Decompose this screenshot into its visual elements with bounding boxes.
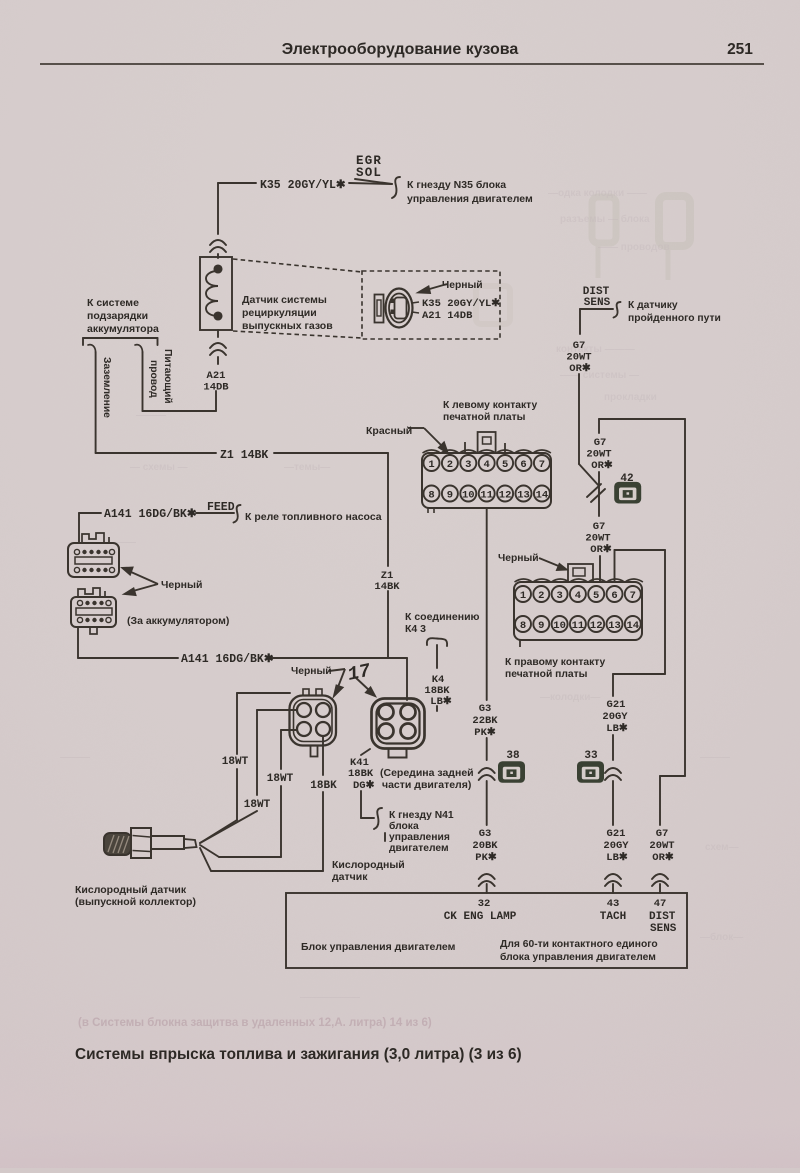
svg-text:прокладки: прокладки — [604, 392, 657, 403]
svg-text:12: 12 — [590, 620, 603, 632]
svg-text:5: 5 — [593, 590, 599, 602]
svg-text:20WT: 20WT — [566, 352, 591, 364]
svg-text:Системы впрыска топлива и зажи: Системы впрыска топлива и зажигания (3,0… — [75, 1046, 522, 1063]
svg-text:—колодки—: —колодки— — [540, 692, 600, 703]
svg-text:двигателем: двигателем — [389, 843, 449, 854]
svg-text:5: 5 — [502, 459, 508, 471]
svg-text:20WT: 20WT — [586, 449, 611, 461]
svg-text:2: 2 — [447, 459, 453, 471]
svg-text:Для 60-ти контактного единого: Для 60-ти контактного единого — [500, 939, 658, 950]
svg-text:—темы—: —темы— — [284, 462, 330, 473]
svg-text:LB✱: LB✱ — [606, 851, 628, 864]
svg-text:G7: G7 — [573, 340, 586, 352]
svg-text:3: 3 — [556, 590, 562, 602]
svg-text:1: 1 — [428, 459, 434, 471]
svg-text:6: 6 — [611, 590, 617, 602]
svg-text:———: ——— — [60, 752, 90, 763]
svg-text:Датчик системы: Датчик системы — [242, 294, 327, 306]
svg-text:251: 251 — [727, 41, 753, 58]
svg-text:G7: G7 — [594, 437, 607, 449]
svg-text:Кислородный датчик: Кислородный датчик — [75, 884, 187, 896]
svg-text:8: 8 — [520, 620, 526, 632]
svg-text:LB✱: LB✱ — [606, 722, 628, 735]
svg-text:18WT: 18WT — [267, 773, 294, 785]
svg-text:CK ENG LAMP: CK ENG LAMP — [444, 911, 517, 923]
svg-text:Электрооборудование кузова: Электрооборудование кузова — [282, 41, 519, 58]
svg-text:A141 16DG/BK✱: A141 16DG/BK✱ — [104, 508, 197, 521]
svg-text:Черный: Черный — [161, 579, 202, 591]
svg-text:20GY: 20GY — [602, 711, 628, 723]
svg-text:OR✱: OR✱ — [590, 543, 612, 556]
svg-text:провод: провод — [148, 360, 159, 398]
svg-text:К соединению: К соединению — [405, 611, 480, 623]
svg-text:OR✱: OR✱ — [591, 459, 613, 472]
svg-text:подзарядки: подзарядки — [87, 310, 148, 322]
svg-text:14DB: 14DB — [203, 382, 229, 394]
svg-text:части двигателя): части двигателя) — [382, 779, 471, 791]
svg-text:G7: G7 — [656, 828, 669, 840]
svg-text:(За аккумулятором): (За аккумулятором) — [127, 615, 229, 627]
svg-text:18WT: 18WT — [244, 799, 271, 811]
svg-text:42: 42 — [620, 473, 633, 485]
svg-text:(выпускной коллектор): (выпускной коллектор) — [75, 896, 196, 908]
svg-text:управления двигателем: управления двигателем — [407, 193, 533, 205]
svg-text:18BK: 18BK — [310, 780, 337, 792]
svg-text:— схемы —: — схемы — — [130, 462, 188, 473]
svg-text:4: 4 — [575, 590, 581, 602]
svg-text:управления: управления — [389, 832, 450, 843]
svg-text:DIST: DIST — [649, 911, 676, 923]
svg-text:——————: —————— — [300, 992, 360, 1003]
svg-text:К реле топливного насоса: К реле топливного насоса — [245, 511, 382, 523]
svg-text:SENS: SENS — [584, 297, 611, 309]
svg-text:Черный: Черный — [498, 553, 539, 564]
svg-text:14: 14 — [626, 620, 639, 632]
svg-text:SENS: SENS — [650, 923, 677, 935]
svg-text:A21 14DB: A21 14DB — [422, 310, 473, 322]
svg-text:11: 11 — [572, 620, 585, 632]
svg-text:LB✱: LB✱ — [430, 695, 452, 708]
svg-text:Черный: Черный — [291, 666, 332, 677]
svg-text:7: 7 — [539, 459, 545, 471]
svg-text:7: 7 — [630, 590, 636, 602]
svg-text:FEED: FEED — [207, 501, 235, 514]
svg-text:G21: G21 — [607, 699, 626, 711]
svg-text:22BK: 22BK — [472, 715, 498, 727]
svg-text:рециркуляции: рециркуляции — [242, 307, 317, 319]
svg-text:К правому контакту: К правому контакту — [505, 657, 606, 668]
svg-text:9: 9 — [447, 489, 453, 501]
svg-text:G21: G21 — [607, 828, 626, 840]
svg-text:PK✱: PK✱ — [475, 851, 497, 864]
svg-text:13: 13 — [517, 489, 530, 501]
svg-text:4: 4 — [484, 459, 490, 471]
svg-text:К гнезду N41: К гнезду N41 — [389, 810, 454, 821]
svg-text:K35 20GY/YL✱: K35 20GY/YL✱ — [260, 179, 346, 192]
svg-text:OR✱: OR✱ — [652, 851, 674, 864]
svg-text:2: 2 — [538, 590, 544, 602]
svg-text:20GY: 20GY — [603, 840, 629, 852]
svg-text:1: 1 — [520, 590, 526, 602]
svg-text:38: 38 — [506, 750, 520, 762]
svg-text:блока управления двигателем: блока управления двигателем — [500, 951, 656, 963]
svg-text:20WT: 20WT — [585, 533, 610, 545]
svg-text:33: 33 — [584, 750, 598, 762]
svg-text:A141 16DG/BK✱: A141 16DG/BK✱ — [181, 653, 274, 666]
svg-text:печатной платы: печатной платы — [505, 669, 588, 680]
svg-text:12: 12 — [499, 489, 512, 501]
svg-text:пройденного пути: пройденного пути — [628, 313, 721, 324]
svg-text:14: 14 — [536, 489, 549, 501]
svg-text:9: 9 — [538, 620, 544, 632]
svg-text:10: 10 — [462, 489, 475, 501]
svg-text:схем—: схем— — [705, 842, 739, 853]
svg-text:DG✱: DG✱ — [353, 779, 375, 792]
svg-text:11: 11 — [480, 489, 493, 501]
svg-text:13: 13 — [608, 620, 621, 632]
svg-text:20BK: 20BK — [472, 840, 498, 852]
svg-text:К4 3: К4 3 — [405, 623, 426, 635]
svg-text:PK✱: PK✱ — [474, 726, 496, 739]
svg-text:—блок—: —блок— — [700, 931, 743, 943]
svg-text:3: 3 — [465, 459, 471, 471]
svg-text:—одка колодки ——: —одка колодки —— — [548, 188, 647, 199]
svg-text:6: 6 — [520, 459, 526, 471]
svg-text:18BK: 18BK — [348, 768, 374, 780]
svg-text:10: 10 — [553, 620, 566, 632]
svg-text:(Середина задней: (Середина задней — [380, 767, 474, 779]
svg-text:блока: блока — [389, 820, 419, 832]
svg-text:TACH: TACH — [600, 911, 626, 923]
svg-text:18WT: 18WT — [222, 756, 249, 768]
svg-text:G3: G3 — [479, 828, 492, 840]
svg-text:К датчику: К датчику — [628, 300, 678, 311]
svg-text:Питающий: Питающий — [162, 349, 173, 404]
svg-text:К левому контакту: К левому контакту — [443, 400, 537, 411]
svg-text:К системе: К системе — [87, 297, 139, 309]
svg-text:выпускных газов: выпускных газов — [242, 320, 333, 332]
svg-text:—— проводов: —— проводов — [598, 242, 670, 253]
svg-text:A21: A21 — [207, 370, 226, 382]
svg-text:G7: G7 — [593, 521, 606, 533]
svg-text:Черный: Черный — [442, 280, 483, 291]
svg-text:датчик: датчик — [332, 871, 368, 883]
svg-text:K35 20GY/YL✱: K35 20GY/YL✱ — [422, 297, 500, 310]
svg-text:OR✱: OR✱ — [569, 362, 591, 375]
svg-text:печатной платы: печатной платы — [443, 412, 526, 423]
svg-text:47: 47 — [654, 898, 667, 910]
svg-text:43: 43 — [607, 898, 620, 910]
svg-text:SOL: SOL — [356, 166, 382, 180]
svg-text:разъемы — блока: разъемы — блока — [560, 213, 650, 225]
svg-text:Z1 14BK: Z1 14BK — [220, 449, 268, 462]
svg-text:8: 8 — [428, 489, 434, 501]
svg-text:аккумулятора: аккумулятора — [87, 323, 159, 335]
svg-text:G3: G3 — [479, 703, 492, 715]
svg-text:Красный: Красный — [366, 425, 412, 437]
svg-text:20WT: 20WT — [649, 840, 674, 852]
svg-text:Кислородный: Кислородный — [332, 859, 405, 871]
svg-text:Блок управления двигателем: Блок управления двигателем — [301, 941, 456, 953]
svg-text:32: 32 — [478, 898, 491, 910]
svg-text:Заземление: Заземление — [101, 357, 112, 418]
svg-text:К гнезду N35 блока: К гнезду N35 блока — [407, 179, 506, 191]
svg-text:14BK: 14BK — [374, 581, 400, 593]
svg-text:———: ——— — [700, 752, 730, 763]
svg-text:(в Системы блокна защитва в уд: (в Системы блокна защитва в удаленных 12… — [78, 1017, 432, 1029]
